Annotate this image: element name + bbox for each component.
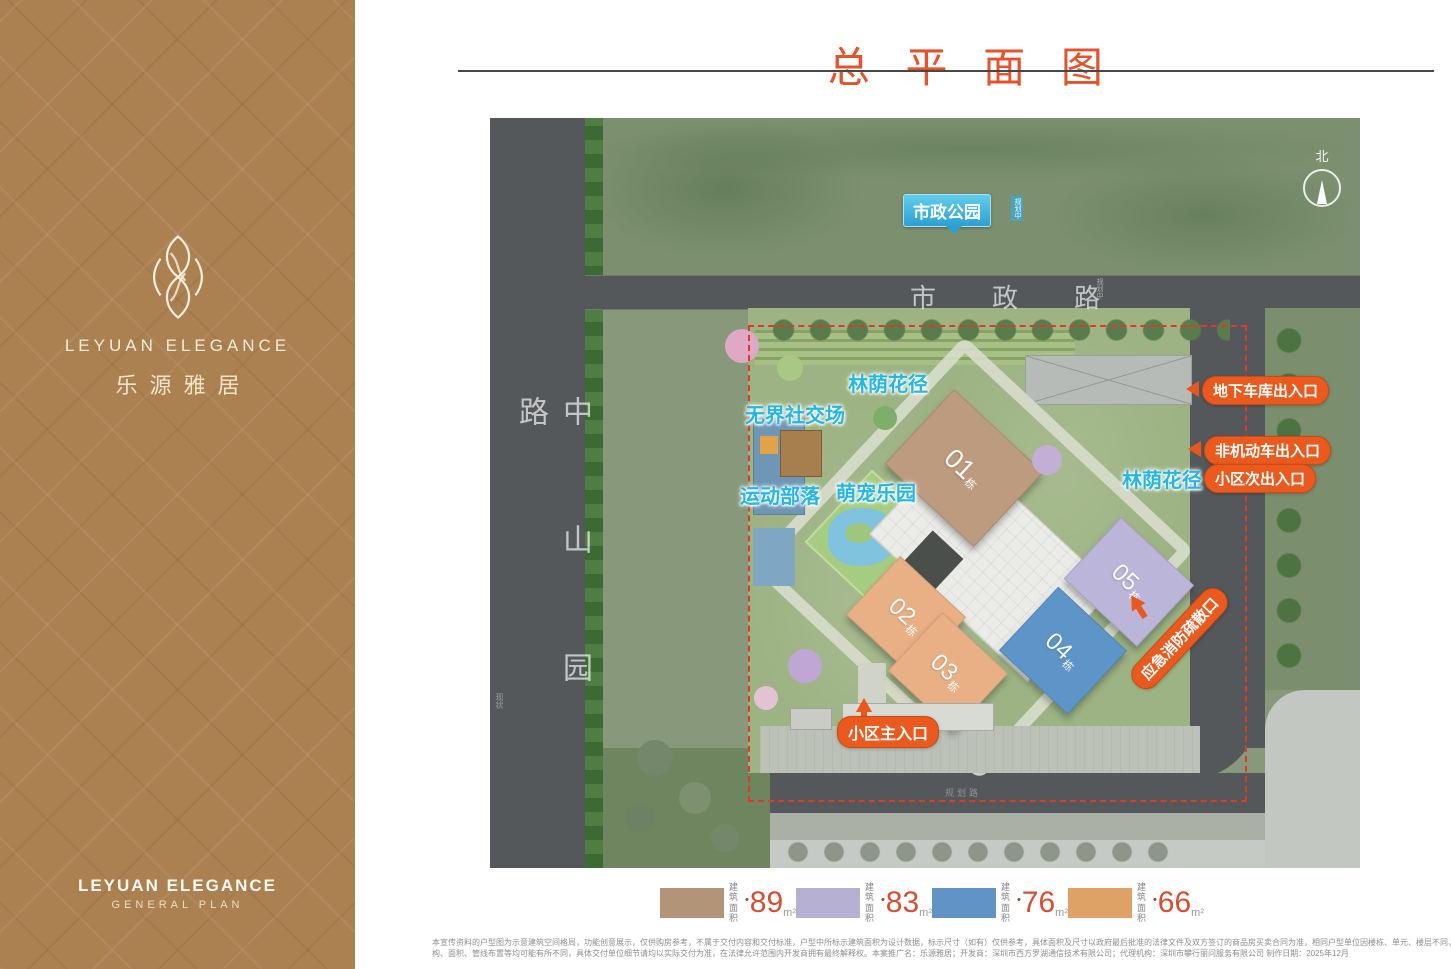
title-divider — [458, 70, 1434, 72]
label-social-ground: 无界社交场 — [745, 399, 845, 428]
road-left-name: 中山园路 — [508, 396, 596, 826]
park-label-annotation: 规划中 — [1011, 196, 1023, 221]
legend-value: 76 — [1017, 889, 1055, 916]
legend-area-label-top: 建筑 — [865, 882, 880, 903]
sidewalk-bottom — [770, 813, 1265, 840]
legend-value: 83 — [881, 889, 919, 916]
legend-area-label-bottom: 面积 — [729, 903, 744, 924]
tree — [625, 803, 655, 833]
tree — [679, 782, 711, 814]
legend-swatch — [796, 888, 860, 918]
legend-unit: m² — [1191, 907, 1204, 919]
disclaimer-line-2: 构、面积、管线布置等均可能有所不同，具体交付单位细节请均以实际交付为准，在法律允… — [432, 948, 1447, 959]
legend-area-label: 建筑面积 — [865, 882, 880, 923]
brand-name-cn: 乐源雅居 — [0, 368, 355, 400]
legend-area-label-bottom: 面积 — [1137, 903, 1152, 924]
brand-name-en: LEYUAN ELEGANCE — [0, 336, 355, 356]
site-boundary — [748, 325, 1247, 802]
site-plan-map: 01栋 02栋 03栋 04栋 05栋 市政路 规划中 — [490, 118, 1360, 868]
legend-area-label: 建筑面积 — [729, 882, 744, 923]
legend-item: 建筑面积 83 m² — [796, 882, 932, 923]
label-pet-park: 萌宠乐园 — [836, 477, 916, 506]
label-shade-path-east: 林荫花径 — [1122, 464, 1202, 493]
pavement-bottom-right — [1265, 690, 1360, 868]
sidebar-footer: LEYUAN ELEGANCE GENERAL PLAN — [0, 876, 355, 911]
tree — [711, 824, 739, 852]
legend-item: 建筑面积 76 m² — [932, 882, 1068, 923]
tree — [637, 740, 673, 776]
pill-secondary-entrance: 小区次出入口 — [1204, 464, 1316, 493]
legend-swatch — [932, 888, 996, 918]
road-top-annotation: 规划中 — [1094, 278, 1104, 299]
tree-row-bottom — [780, 838, 1180, 866]
tree-row-right-verge — [1272, 318, 1306, 683]
footer-subtitle: GENERAL PLAN — [0, 899, 355, 911]
legend-item: 建筑面积 66 m² — [1068, 882, 1204, 923]
compass-ring — [1303, 169, 1341, 207]
legend-area-label-bottom: 面积 — [1001, 903, 1016, 924]
legend-swatch — [660, 888, 724, 918]
legend-area-label-bottom: 面积 — [865, 903, 880, 924]
brand-logo-icon — [132, 228, 224, 326]
road-top-name: 市政路 — [910, 278, 1156, 315]
legend-value: 66 — [1153, 889, 1191, 916]
disclaimer-line-1: 本宣传资料的户型图为示意建筑空间格局，功能创意展示，仅供购房参考，不属于交付内容… — [432, 937, 1447, 948]
arrow-left-icon — [1178, 381, 1199, 397]
brand-sidebar: LEYUAN ELEGANCE 乐源雅居 LEYUAN ELEGANCE GEN… — [0, 0, 355, 969]
pill-non-motor-entrance: 非机动车出入口 — [1204, 436, 1331, 465]
label-sports-zone: 运动部落 — [740, 480, 820, 509]
page: LEYUAN ELEGANCE 乐源雅居 LEYUAN ELEGANCE GEN… — [0, 0, 1451, 969]
pill-main-entrance: 小区主入口 — [837, 716, 939, 748]
legend-value: 89 — [745, 889, 783, 916]
brand-block: LEYUAN ELEGANCE 乐源雅居 — [0, 228, 355, 400]
page-title: 总平面图 — [460, 34, 1451, 95]
label-shade-path-north: 林荫花径 — [848, 368, 928, 397]
compass-needle-icon — [1317, 175, 1327, 204]
legend-unit: m² — [919, 907, 932, 919]
legend-area-label: 建筑面积 — [1137, 882, 1152, 923]
disclaimer: 本宣传资料的户型图为示意建筑空间格局，功能创意展示，仅供购房参考，不属于交付内容… — [432, 937, 1447, 959]
road-bottom-annotation: 规划路 — [945, 786, 981, 799]
legend: 建筑面积 89 m² 建筑面积 83 m² 建筑面积 76 m² 建筑面积 66… — [660, 882, 1260, 923]
park-label: 市政公园 — [903, 194, 991, 227]
road-left-annotation: 现状 — [494, 693, 505, 709]
legend-area-label-top: 建筑 — [1137, 882, 1152, 903]
legend-unit: m² — [1055, 907, 1068, 919]
pill-garage-entrance: 地下车库出入口 — [1202, 376, 1329, 405]
legend-area-label-top: 建筑 — [1001, 882, 1016, 903]
legend-area-label-top: 建筑 — [729, 882, 744, 903]
legend-swatch — [1068, 888, 1132, 918]
arrow-left-icon — [1180, 441, 1201, 457]
legend-unit: m² — [783, 907, 796, 919]
compass: 北 — [1298, 146, 1346, 207]
footer-brand-en: LEYUAN ELEGANCE — [0, 876, 355, 896]
compass-north-label: 北 — [1298, 146, 1346, 165]
legend-item: 建筑面积 89 m² — [660, 882, 796, 923]
legend-area-label: 建筑面积 — [1001, 882, 1016, 923]
